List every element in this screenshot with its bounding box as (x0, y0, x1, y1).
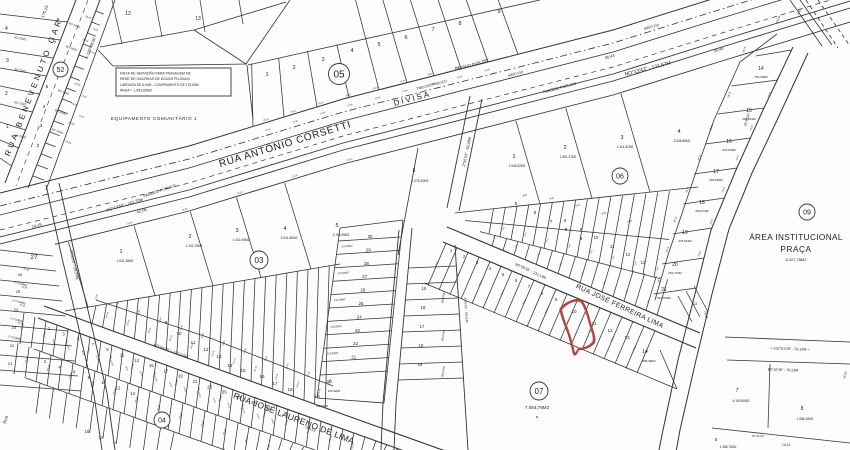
svg-text:11: 11 (592, 321, 597, 326)
svg-text:REDE DE GALERIAS DE ÁGUAS PLUV: REDE DE GALERIAS DE ÁGUAS PLUVIAIS (120, 77, 190, 81)
svg-text:6: 6 (404, 35, 407, 41)
svg-text:EQUIPAMENTO COMUNITÁRIO 1: EQUIPAMENTO COMUNITÁRIO 1 (111, 115, 197, 121)
svg-text:25: 25 (359, 301, 364, 306)
svg-text:09: 09 (803, 210, 811, 217)
svg-text:27: 27 (30, 254, 38, 261)
svg-text:808,08M2: 808,08M2 (642, 359, 656, 363)
svg-text:14: 14 (130, 391, 135, 396)
svg-text:6: 6 (413, 168, 416, 174)
svg-text:17: 17 (272, 381, 278, 386)
svg-text:20: 20 (672, 262, 678, 268)
svg-text:2: 2 (37, 143, 40, 149)
svg-text:15: 15 (149, 363, 154, 368)
svg-text:8: 8 (458, 21, 461, 27)
svg-text:16: 16 (726, 139, 732, 145)
svg-text:26: 26 (18, 272, 23, 277)
svg-text:17: 17 (163, 368, 168, 373)
svg-text:11: 11 (191, 340, 196, 345)
svg-text:31: 31 (266, 406, 271, 411)
svg-text:11: 11 (120, 353, 125, 358)
svg-text:2.114,52M2: 2.114,52M2 (617, 145, 634, 149)
svg-text:25: 25 (222, 390, 227, 395)
svg-text:19: 19 (178, 374, 183, 379)
svg-text:3: 3 (321, 57, 324, 63)
svg-text:12: 12 (626, 252, 631, 257)
svg-text:3: 3 (235, 228, 238, 234)
svg-text:1: 1 (6, 124, 9, 130)
svg-text:13: 13 (693, 302, 697, 306)
svg-text:4.190,80M2: 4.190,80M2 (733, 399, 750, 403)
svg-text:13: 13 (216, 354, 222, 359)
svg-text:10: 10 (85, 429, 90, 434)
svg-text:5: 5 (377, 42, 380, 48)
svg-text:11: 11 (610, 244, 615, 249)
svg-text:21: 21 (351, 355, 356, 360)
svg-text:1: 1 (119, 249, 122, 255)
svg-text:1: 1 (265, 72, 268, 78)
svg-text:7: 7 (736, 388, 739, 394)
svg-text:7: 7 (550, 219, 553, 224)
svg-text:13: 13 (624, 335, 630, 340)
svg-text:10: 10 (571, 309, 577, 314)
svg-text:5: 5 (715, 437, 718, 442)
svg-text:3: 3 (6, 58, 9, 64)
svg-text:18: 18 (699, 200, 705, 206)
svg-text:6: 6 (534, 210, 537, 215)
svg-text:25: 25 (16, 289, 21, 294)
svg-text:19: 19 (682, 230, 688, 236)
svg-text:7: 7 (431, 27, 434, 33)
svg-text:3.041,86M2: 3.041,86M2 (281, 236, 298, 240)
svg-text:2: 2 (563, 145, 566, 151)
svg-text:21: 21 (661, 287, 667, 293)
svg-text:8: 8 (565, 227, 568, 232)
svg-text:527,80M2: 527,80M2 (657, 296, 671, 300)
svg-text:27: 27 (362, 274, 367, 279)
svg-text:1.591,37M2: 1.591,37M2 (560, 155, 577, 159)
svg-text:ÁREA = 1.053,60M2: ÁREA = 1.053,60M2 (120, 88, 152, 92)
svg-text:23: 23 (12, 325, 17, 330)
svg-text:13: 13 (641, 260, 646, 265)
svg-text:8.327,78M2: 8.327,78M2 (785, 257, 807, 262)
svg-text:17: 17 (420, 324, 425, 329)
svg-text:5: 5 (515, 201, 518, 206)
svg-text:3: 3 (40, 123, 43, 129)
svg-text:2: 2 (5, 91, 8, 97)
svg-text:1.076,40M2: 1.076,40M2 (412, 179, 429, 183)
svg-text:21: 21 (193, 379, 198, 384)
svg-text:30: 30 (368, 234, 373, 239)
svg-text:4: 4 (5, 26, 8, 32)
svg-text:05: 05 (333, 70, 345, 81)
svg-text:760,69M2: 760,69M2 (754, 75, 768, 79)
svg-text:20: 20 (326, 379, 332, 385)
svg-text:2: 2 (188, 234, 191, 240)
svg-text:22: 22 (353, 341, 358, 346)
svg-text:1.586,18M2: 1.586,18M2 (797, 417, 814, 421)
svg-text:04: 04 (158, 418, 166, 425)
svg-text:460,27M2: 460,27M2 (695, 209, 709, 213)
svg-text:3: 3 (620, 135, 623, 141)
svg-text:9: 9 (497, 9, 500, 15)
svg-text:22: 22 (10, 343, 15, 348)
svg-text:1.546,52M2: 1.546,52M2 (509, 164, 526, 168)
svg-text:24: 24 (14, 307, 19, 312)
svg-text:03: 03 (255, 256, 264, 265)
svg-text:21: 21 (8, 361, 13, 366)
svg-text:13: 13 (134, 358, 139, 363)
svg-text:1: 1 (512, 154, 515, 160)
svg-text:5: 5 (335, 223, 338, 229)
svg-text:3.760,95M2: 3.760,95M2 (333, 233, 350, 237)
svg-text:07: 07 (535, 387, 544, 396)
svg-text:8: 8 (801, 406, 804, 412)
svg-text:484,37M2: 484,37M2 (668, 271, 682, 275)
svg-text:14,24: 14,24 (782, 443, 790, 447)
svg-text:14: 14 (758, 66, 764, 72)
svg-text:1.402,45M2: 1.402,45M2 (233, 238, 250, 242)
svg-text:29: 29 (366, 247, 371, 252)
svg-text:PRAÇA: PRAÇA (780, 245, 811, 254)
svg-text:241,91M2: 241,91M2 (316, 404, 329, 408)
svg-text:5: 5 (46, 84, 49, 90)
svg-text:14: 14 (642, 349, 648, 355)
svg-text:18: 18 (419, 343, 424, 348)
svg-text:12: 12 (607, 328, 613, 333)
svg-text:27: 27 (236, 395, 241, 400)
svg-text:15: 15 (422, 286, 427, 291)
svg-text:15: 15 (240, 368, 246, 373)
svg-text:16: 16 (421, 305, 426, 310)
svg-text:8: 8 (57, 17, 60, 23)
svg-text:10: 10 (101, 380, 106, 385)
svg-text:4: 4 (283, 226, 286, 232)
svg-text:2: 2 (292, 65, 295, 71)
svg-text:LARGURA DE 6,00M - COMPRIMENTO: LARGURA DE 6,00M - COMPRIMENTO DE 175,60… (120, 83, 199, 87)
svg-text:19: 19 (418, 362, 423, 367)
svg-text:12: 12 (125, 11, 131, 17)
svg-text:52: 52 (57, 67, 65, 74)
svg-text:12: 12 (116, 386, 121, 391)
svg-text:26: 26 (360, 288, 365, 293)
svg-text:FAIXA DE SERVIDÃO PARA PASSAGE: FAIXA DE SERVIDÃO PARA PASSAGEM DE (120, 71, 191, 76)
svg-text:7.064,76M2: 7.064,76M2 (525, 405, 550, 410)
svg-text:1.102,76M2: 1.102,76M2 (186, 244, 203, 248)
svg-text:10: 10 (176, 331, 182, 336)
svg-text:4: 4 (677, 129, 680, 135)
svg-text:2.636,86M2: 2.636,86M2 (674, 139, 691, 143)
svg-text:24: 24 (357, 314, 362, 319)
svg-text:476,51M2: 476,51M2 (678, 239, 692, 243)
svg-text:1.631,38M2: 1.631,38M2 (117, 259, 134, 263)
svg-text:18: 18 (287, 387, 293, 392)
svg-text:23: 23 (207, 384, 212, 389)
svg-text:17: 17 (713, 169, 719, 175)
svg-text:ÁREA INSTITUCIONAL: ÁREA INSTITUCIONAL (749, 232, 843, 242)
svg-text:250,30M2: 250,30M2 (328, 389, 341, 393)
svg-text:13: 13 (195, 16, 201, 22)
svg-text:06: 06 (616, 174, 624, 181)
svg-text:4: 4 (350, 48, 353, 54)
svg-text:4: 4 (43, 104, 46, 110)
svg-text:14: 14 (227, 363, 233, 368)
svg-text:12: 12 (203, 347, 209, 352)
svg-text:1.485,76M2: 1.485,76M2 (720, 445, 737, 449)
svg-text:10: 10 (594, 235, 599, 240)
svg-text:473,84M2: 473,84M2 (722, 148, 736, 152)
svg-text:9: 9 (580, 236, 583, 241)
svg-text:7: 7 (54, 40, 57, 46)
svg-text:14: 14 (113, 440, 118, 445)
svg-text:466,89M2: 466,89M2 (709, 178, 723, 182)
svg-text:16: 16 (259, 374, 265, 379)
svg-text:23: 23 (355, 328, 360, 333)
svg-text:28: 28 (364, 261, 369, 266)
svg-text:29: 29 (251, 400, 256, 405)
svg-text:10°41'50": 10°41'50" (752, 434, 765, 438)
